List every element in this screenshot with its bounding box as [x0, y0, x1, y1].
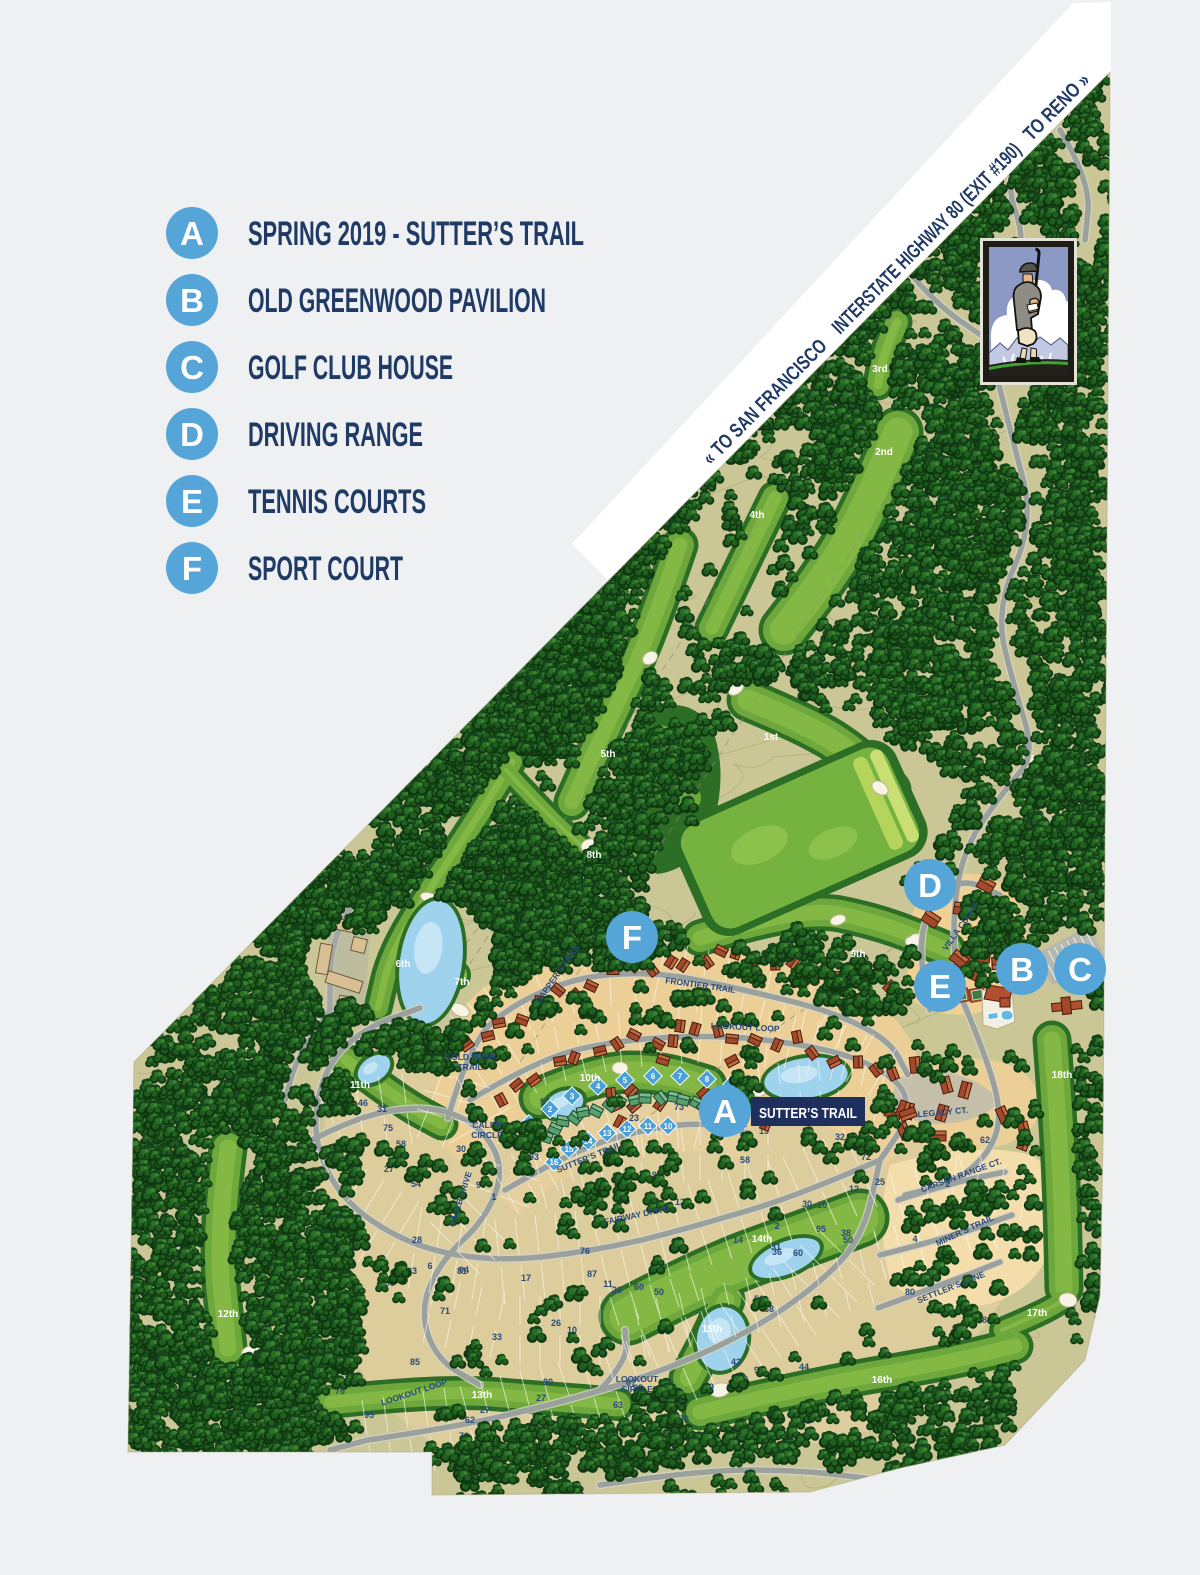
svg-text:80: 80	[905, 1287, 915, 1297]
svg-text:7th: 7th	[455, 977, 470, 988]
svg-text:SPRING 2019 - SUTTER’S TRAIL: SPRING 2019 - SUTTER’S TRAIL	[248, 215, 584, 253]
svg-text:F: F	[182, 550, 202, 587]
svg-text:8th: 8th	[587, 850, 602, 861]
svg-text:F: F	[622, 919, 642, 956]
svg-text:2: 2	[548, 1105, 553, 1114]
svg-text:2: 2	[774, 1221, 779, 1231]
svg-text:94: 94	[459, 1265, 469, 1275]
svg-text:5: 5	[623, 1076, 628, 1085]
svg-text:60: 60	[634, 1282, 644, 1292]
svg-text:30: 30	[456, 1144, 466, 1154]
svg-text:SUTTER’S TRAIL: SUTTER’S TRAIL	[759, 1105, 857, 1122]
svg-text:TRAIL: TRAIL	[457, 1062, 482, 1072]
svg-text:27: 27	[536, 1393, 546, 1403]
svg-text:17th: 17th	[1027, 1308, 1048, 1319]
svg-text:1: 1	[491, 1192, 496, 1202]
svg-text:31: 31	[771, 1242, 781, 1252]
svg-text:B: B	[1010, 951, 1034, 988]
svg-text:95: 95	[364, 1410, 374, 1420]
svg-text:5th: 5th	[601, 749, 616, 760]
svg-text:E: E	[929, 968, 951, 1005]
svg-text:13: 13	[603, 1129, 612, 1138]
svg-text:75: 75	[383, 1123, 393, 1133]
svg-text:46: 46	[358, 1098, 368, 1108]
svg-text:33: 33	[492, 1332, 502, 1342]
svg-text:SPORT COURT: SPORT COURT	[248, 550, 403, 588]
svg-text:6: 6	[651, 1072, 656, 1081]
svg-text:C: C	[180, 349, 204, 386]
svg-text:E: E	[181, 483, 203, 520]
svg-text:26: 26	[612, 1285, 622, 1295]
svg-text:1st: 1st	[764, 732, 779, 743]
svg-text:71: 71	[440, 1306, 450, 1316]
svg-text:63: 63	[613, 1400, 623, 1410]
svg-text:50: 50	[843, 1235, 853, 1245]
svg-text:C: C	[1068, 951, 1092, 988]
svg-text:CIRCLE: CIRCLE	[471, 1130, 503, 1140]
svg-text:D: D	[180, 416, 204, 453]
svg-text:44: 44	[799, 1362, 809, 1372]
svg-text:A: A	[713, 1093, 737, 1130]
svg-text:7: 7	[678, 1072, 683, 1081]
svg-text:OLD GREENWOOD PAVILION: OLD GREENWOOD PAVILION	[248, 282, 546, 320]
svg-text:32: 32	[835, 1132, 845, 1142]
svg-text:28: 28	[412, 1235, 422, 1245]
svg-text:60: 60	[793, 1248, 803, 1258]
svg-text:10: 10	[664, 1122, 673, 1131]
svg-text:62: 62	[980, 1135, 990, 1145]
svg-text:12: 12	[623, 1125, 632, 1134]
svg-text:14th: 14th	[752, 1234, 773, 1245]
svg-text:6th: 6th	[396, 959, 411, 970]
svg-text:CIRCLE: CIRCLE	[621, 1384, 653, 1394]
svg-text:26: 26	[551, 1318, 561, 1328]
svg-text:25: 25	[875, 1177, 885, 1187]
svg-text:9th: 9th	[851, 949, 866, 960]
svg-text:15th: 15th	[702, 1324, 723, 1335]
svg-text:62: 62	[465, 1415, 475, 1425]
svg-text:95: 95	[816, 1224, 826, 1234]
svg-text:31: 31	[377, 1104, 387, 1114]
svg-text:LOOKOUT: LOOKOUT	[616, 1374, 659, 1384]
svg-text:14: 14	[733, 1235, 743, 1245]
svg-text:10th: 10th	[580, 1073, 601, 1084]
svg-text:42: 42	[731, 1357, 741, 1367]
svg-text:13th: 13th	[472, 1390, 493, 1401]
svg-text:18th: 18th	[1052, 1070, 1073, 1081]
svg-text:85: 85	[410, 1357, 420, 1367]
svg-text:12th: 12th	[218, 1309, 239, 1320]
svg-text:D: D	[918, 867, 942, 904]
svg-text:30: 30	[802, 1199, 812, 1209]
svg-text:B: B	[180, 282, 204, 319]
svg-text:4: 4	[912, 1234, 917, 1244]
svg-text:76: 76	[580, 1246, 590, 1256]
svg-text:87: 87	[587, 1269, 597, 1279]
svg-text:GOLF CLUB HOUSE: GOLF CLUB HOUSE	[248, 349, 453, 387]
svg-text:16th: 16th	[872, 1375, 893, 1386]
svg-text:DRIVING RANGE: DRIVING RANGE	[248, 416, 423, 454]
svg-text:27: 27	[480, 1405, 490, 1415]
svg-text:58: 58	[740, 1155, 750, 1165]
svg-text:CALEB: CALEB	[472, 1120, 501, 1130]
svg-text:23: 23	[629, 1113, 639, 1123]
svg-text:11th: 11th	[350, 1080, 370, 1091]
svg-text:GOLD RUSH: GOLD RUSH	[445, 1052, 496, 1062]
svg-text:11: 11	[644, 1122, 653, 1131]
svg-text:80: 80	[543, 1377, 553, 1387]
svg-text:4th: 4th	[750, 510, 765, 521]
svg-text:3rd: 3rd	[872, 364, 888, 375]
svg-text:3: 3	[570, 1092, 575, 1101]
svg-text:10: 10	[817, 1200, 827, 1210]
svg-text:50: 50	[654, 1287, 664, 1297]
svg-text:2nd: 2nd	[875, 447, 893, 458]
svg-text:17: 17	[521, 1273, 531, 1283]
svg-text:8: 8	[705, 1075, 710, 1084]
svg-text:6: 6	[427, 1261, 432, 1271]
svg-text:12: 12	[849, 1184, 859, 1194]
svg-text:TENNIS COURTS: TENNIS COURTS	[248, 483, 426, 521]
svg-text:A: A	[180, 215, 204, 252]
